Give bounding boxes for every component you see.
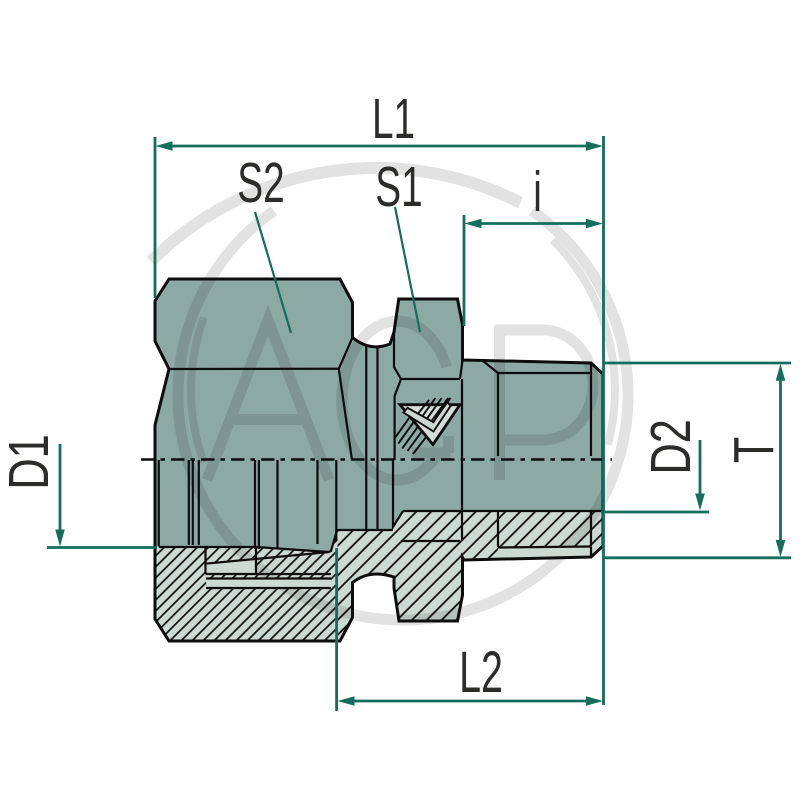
svg-text:L1: L1 (372, 88, 415, 151)
svg-text:D1: D1 (0, 434, 60, 489)
svg-text:L2: L2 (459, 639, 503, 704)
svg-text:D2: D2 (638, 419, 702, 474)
svg-text:T: T (721, 437, 785, 463)
svg-text:i: i (533, 161, 542, 224)
svg-text:S2: S2 (237, 152, 284, 215)
svg-text:S1: S1 (375, 156, 422, 219)
